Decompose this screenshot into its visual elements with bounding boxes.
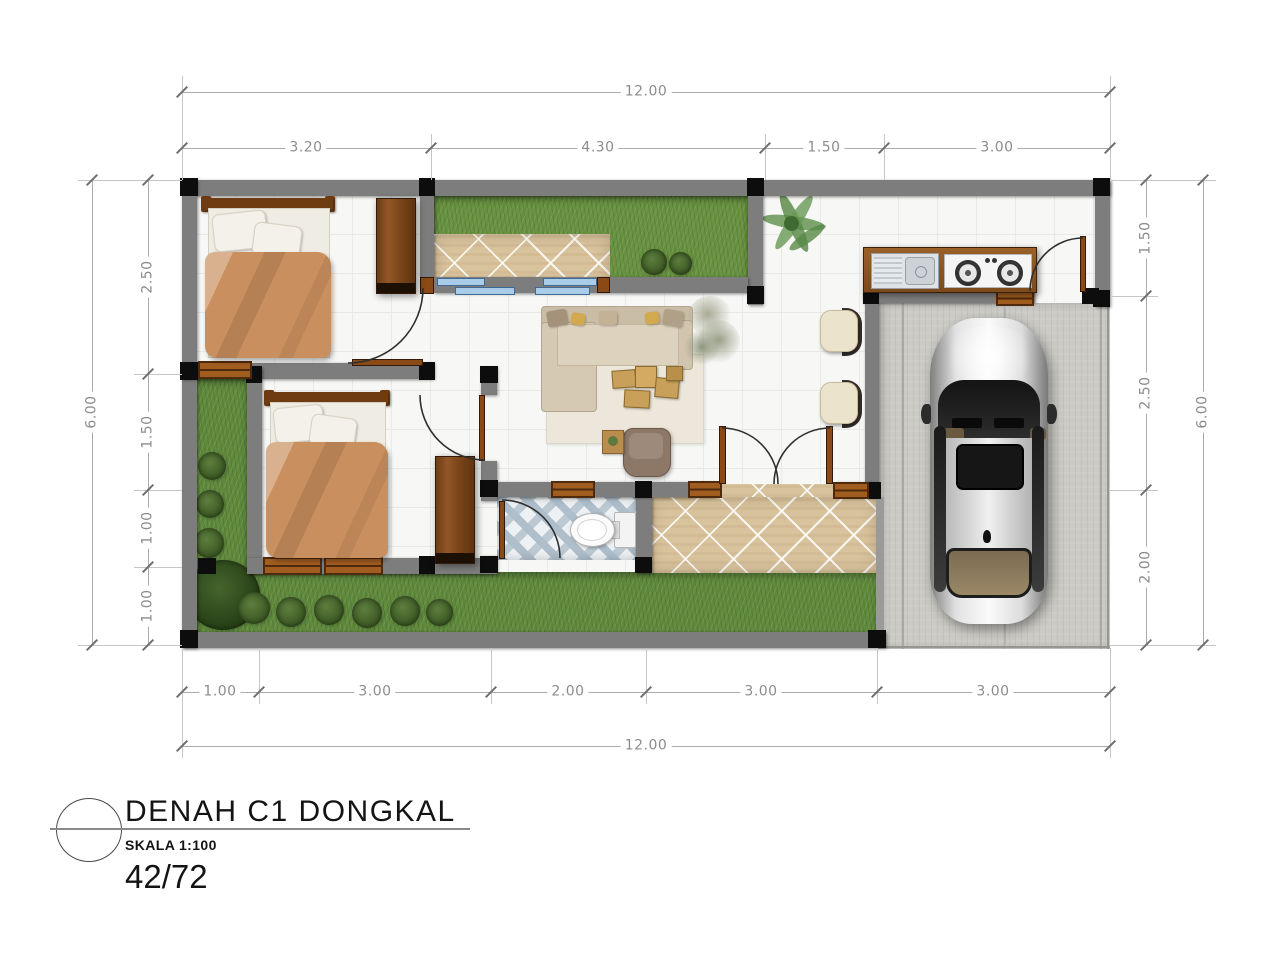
door-leaf <box>499 501 505 559</box>
potted-plant-icon <box>684 294 742 372</box>
bush-icon <box>314 595 344 625</box>
wall <box>497 482 715 497</box>
carport-joint <box>902 303 904 649</box>
column <box>747 178 764 196</box>
palm-plant-icon <box>760 198 832 262</box>
column <box>419 178 435 196</box>
column <box>635 481 652 498</box>
car-mirror <box>921 404 931 424</box>
door-leaf <box>719 426 726 484</box>
window-sill <box>688 481 722 498</box>
kitchen-counter <box>863 247 1037 293</box>
wardrobe <box>435 456 475 564</box>
floor-plan-sheet: 12.00 3.20 4.30 1.50 3.00 6.00 2.50 1.50… <box>0 0 1280 960</box>
sliding-window <box>543 278 597 286</box>
dim-label: 1.00 <box>140 507 155 548</box>
dim-label: 1.00 <box>199 684 240 699</box>
wall <box>420 195 434 285</box>
dim-label: 3.00 <box>354 684 395 699</box>
dim-label: 3.00 <box>976 140 1017 155</box>
terrace-floor <box>650 497 877 573</box>
column <box>480 366 498 383</box>
bush-icon <box>196 490 224 518</box>
dim-label: 2.50 <box>140 256 155 297</box>
wall <box>182 632 886 648</box>
car <box>930 318 1048 624</box>
column <box>747 286 764 304</box>
window-sill <box>833 482 869 499</box>
dim-label: 4.30 <box>577 140 618 155</box>
title-bubble-icon <box>56 798 122 862</box>
window-sill <box>996 291 1034 306</box>
dim-label: 2.50 <box>1138 372 1153 413</box>
column <box>635 557 652 573</box>
title-underline <box>50 828 470 830</box>
terrace-floor <box>716 484 834 497</box>
column <box>180 630 198 648</box>
house-type-label: 42/72 <box>125 860 208 893</box>
sliding-window <box>437 278 485 286</box>
car-antenna <box>983 530 991 543</box>
bush-icon <box>641 249 667 275</box>
bush-icon <box>198 452 226 480</box>
dim-label: 1.50 <box>1138 217 1153 258</box>
car-windshield <box>938 380 1040 446</box>
wardrobe <box>376 198 416 294</box>
wall <box>182 180 1110 196</box>
column <box>180 362 198 380</box>
bush-icon <box>194 528 224 558</box>
column <box>480 480 498 497</box>
sliding-window <box>455 287 515 295</box>
kitchen-stove <box>944 254 1032 288</box>
dim-label-top-overall: 12.00 <box>621 84 672 99</box>
bush-icon <box>276 597 306 627</box>
door-leaf <box>479 395 485 461</box>
window-post <box>597 277 610 293</box>
car-rear-window <box>946 548 1032 598</box>
carport-edge <box>1107 303 1109 649</box>
carport-joint <box>1100 303 1102 649</box>
dim-label: 1.00 <box>140 585 155 626</box>
side-table <box>602 430 624 454</box>
column <box>419 556 435 574</box>
coffee-table <box>608 364 682 412</box>
door-leaf <box>826 426 833 484</box>
bush-icon <box>669 252 692 275</box>
bush-icon <box>426 599 453 626</box>
window-post <box>420 277 434 294</box>
dim-label: 2.00 <box>547 684 588 699</box>
dim-label-right-overall: 6.00 <box>1195 391 1210 432</box>
column <box>1093 178 1110 196</box>
car-sunroof <box>956 444 1024 490</box>
dim-label: 2.00 <box>1138 546 1153 587</box>
car-mirror <box>1047 404 1057 424</box>
column <box>868 630 886 648</box>
wall <box>247 367 262 573</box>
bed <box>266 390 388 562</box>
wall <box>876 497 884 633</box>
dim-label: 1.50 <box>140 411 155 452</box>
door-leaf <box>1080 236 1086 292</box>
dim-label: 3.00 <box>972 684 1013 699</box>
toilet <box>570 509 638 551</box>
drawing-title: DENAH C1 DONGKAL <box>125 797 456 827</box>
dim-label: 3.00 <box>740 684 781 699</box>
dim-label: 3.20 <box>285 140 326 155</box>
column <box>180 178 198 196</box>
dim-label-left-overall: 6.00 <box>84 391 99 432</box>
door-leaf <box>352 359 423 366</box>
dim-label-bottom-overall: 12.00 <box>621 738 672 753</box>
kitchen-sink <box>871 253 939 289</box>
wall <box>182 180 197 648</box>
carport-edge <box>877 646 1110 648</box>
window-sill <box>551 481 595 498</box>
bush-icon <box>390 596 420 626</box>
column <box>1093 290 1110 307</box>
dim-label: 1.50 <box>803 140 844 155</box>
bush-icon <box>238 592 270 624</box>
sliding-window <box>535 287 590 295</box>
drawing-scale: SKALA 1:100 <box>125 838 217 852</box>
column <box>198 558 216 574</box>
armchair <box>623 428 671 477</box>
window-sill <box>198 361 252 379</box>
bush-icon <box>352 598 382 628</box>
bed <box>203 196 333 362</box>
column <box>480 556 498 573</box>
stool <box>820 382 868 426</box>
stool <box>820 310 868 354</box>
